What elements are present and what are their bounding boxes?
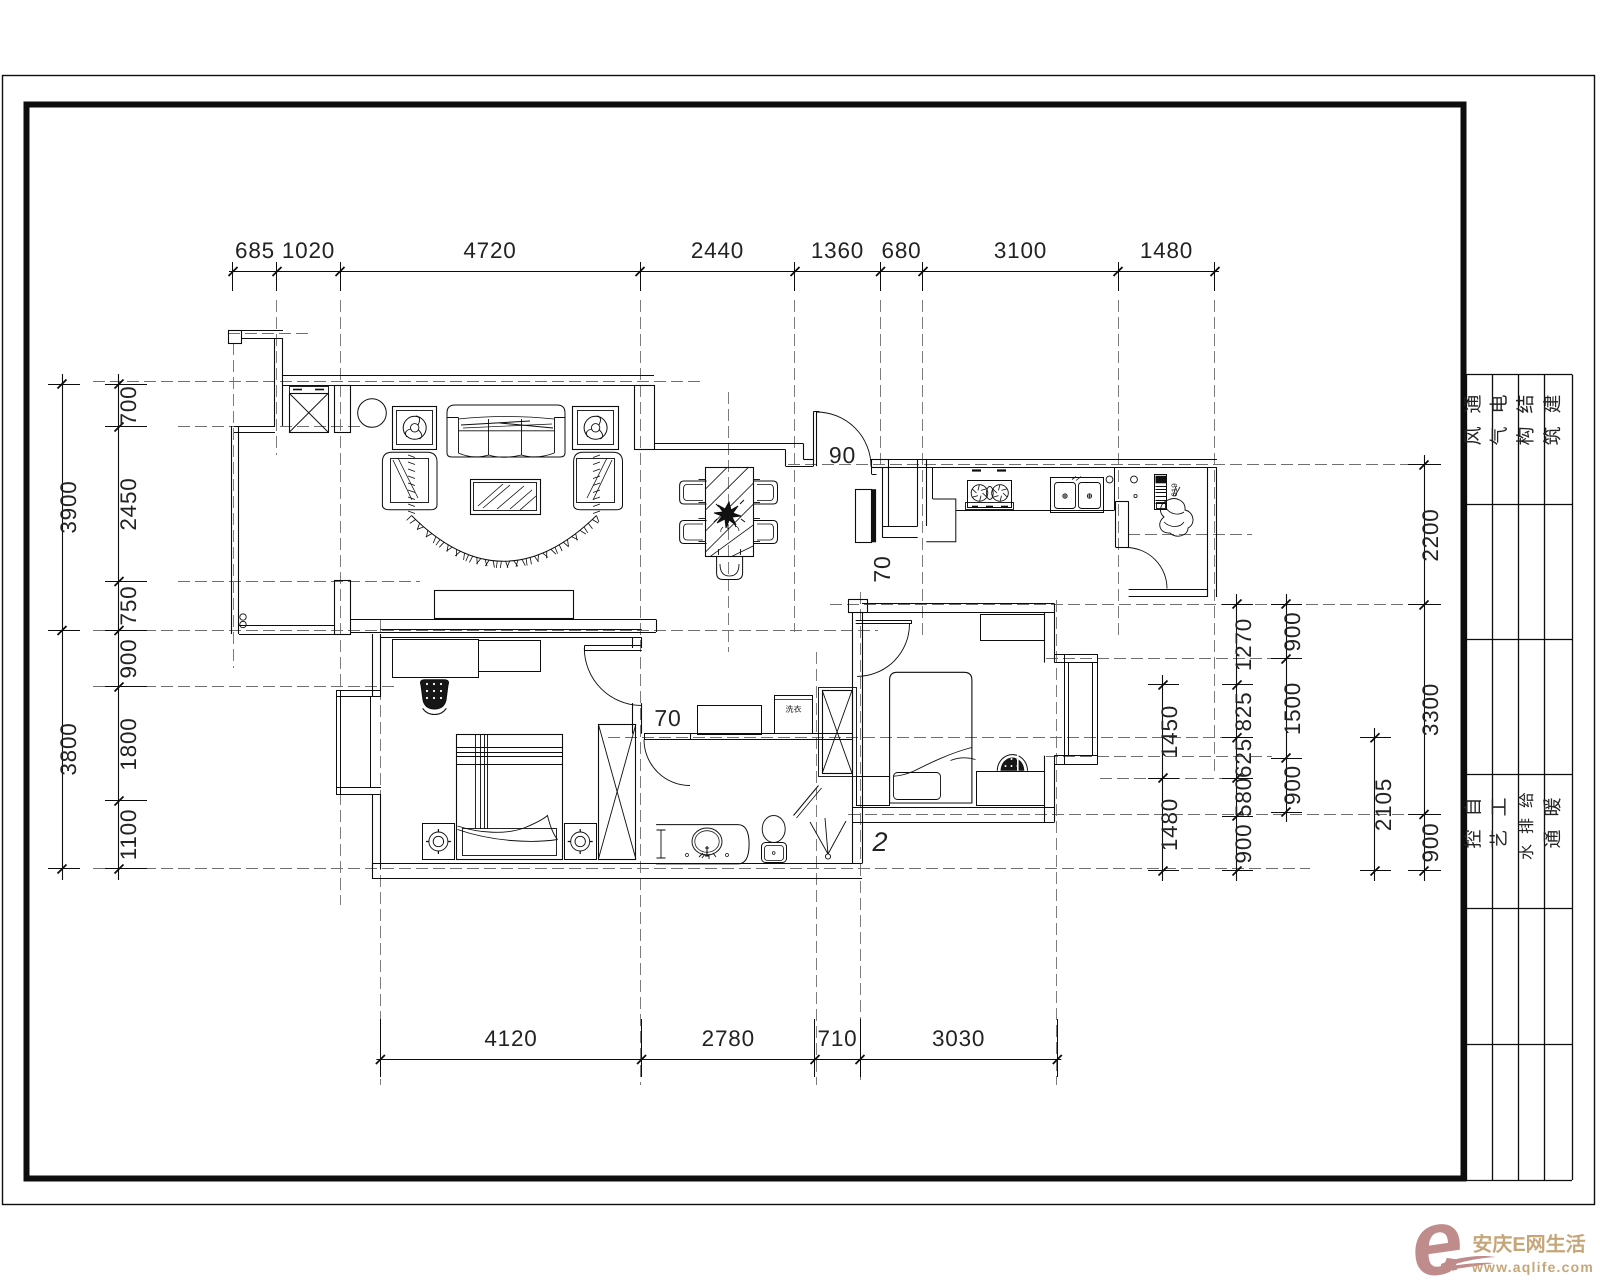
svg-text:580: 580	[1231, 777, 1256, 817]
svg-text:900: 900	[1280, 612, 1305, 652]
svg-text:710: 710	[818, 1026, 858, 1051]
svg-text:气: 气	[1490, 426, 1511, 445]
svg-text:通: 通	[1464, 394, 1485, 413]
svg-text:3300: 3300	[1418, 683, 1443, 736]
svg-text:2105: 2105	[1371, 778, 1396, 831]
svg-text:1270: 1270	[1231, 618, 1256, 671]
svg-text:625: 625	[1231, 738, 1256, 778]
svg-text:通: 通	[1543, 829, 1564, 848]
svg-text:水: 水	[1518, 844, 1536, 860]
svg-text:安庆E网生活: 安庆E网生活	[1472, 1233, 1585, 1256]
svg-text:构: 构	[1516, 426, 1537, 445]
svg-text:3100: 3100	[994, 238, 1047, 263]
svg-text:3030: 3030	[932, 1026, 985, 1051]
svg-text:4720: 4720	[463, 238, 516, 263]
svg-text:1500: 1500	[1280, 682, 1305, 735]
svg-text:洗衣: 洗衣	[786, 705, 802, 714]
svg-text:90: 90	[829, 442, 856, 468]
svg-text:70: 70	[654, 705, 681, 731]
svg-text:自: 自	[1464, 797, 1485, 816]
svg-text:2200: 2200	[1418, 508, 1443, 561]
svg-text:1020: 1020	[282, 238, 335, 263]
svg-text:给: 给	[1518, 792, 1536, 808]
svg-text:暖: 暖	[1543, 797, 1564, 816]
svg-text:2440: 2440	[691, 238, 744, 263]
svg-text:685: 685	[235, 238, 275, 263]
svg-text:680: 680	[882, 238, 922, 263]
svg-text:建: 建	[1543, 394, 1564, 413]
svg-text:1480: 1480	[1157, 798, 1182, 851]
svg-text:工: 工	[1490, 797, 1511, 816]
svg-text:www.aqlife.com: www.aqlife.com	[1471, 1259, 1594, 1275]
svg-text:3900: 3900	[56, 480, 81, 533]
svg-text:700: 700	[116, 386, 141, 426]
svg-text:1100: 1100	[116, 809, 141, 861]
svg-text:900: 900	[1418, 823, 1443, 863]
svg-text:电: 电	[1490, 394, 1511, 413]
svg-text:排: 排	[1518, 818, 1536, 834]
svg-text:900: 900	[1280, 765, 1305, 805]
svg-text:900: 900	[1231, 824, 1256, 864]
svg-text:3800: 3800	[56, 722, 81, 775]
svg-text:4120: 4120	[484, 1026, 537, 1051]
svg-text:750: 750	[116, 586, 141, 626]
svg-text:艺: 艺	[1490, 829, 1511, 848]
svg-text:2450: 2450	[116, 477, 141, 530]
svg-text:825: 825	[1231, 692, 1256, 732]
svg-text:1480: 1480	[1140, 238, 1193, 263]
svg-text:70: 70	[869, 555, 895, 582]
svg-text:1360: 1360	[811, 238, 864, 263]
svg-text:控: 控	[1464, 829, 1485, 848]
svg-text:900: 900	[116, 639, 141, 679]
svg-text:2780: 2780	[702, 1026, 755, 1051]
svg-text:筑: 筑	[1542, 426, 1564, 445]
svg-text:2: 2	[871, 827, 887, 857]
svg-text:风: 风	[1464, 426, 1485, 445]
svg-text:结: 结	[1516, 394, 1537, 413]
svg-text:1450: 1450	[1157, 705, 1182, 758]
svg-text:1800: 1800	[116, 717, 141, 770]
